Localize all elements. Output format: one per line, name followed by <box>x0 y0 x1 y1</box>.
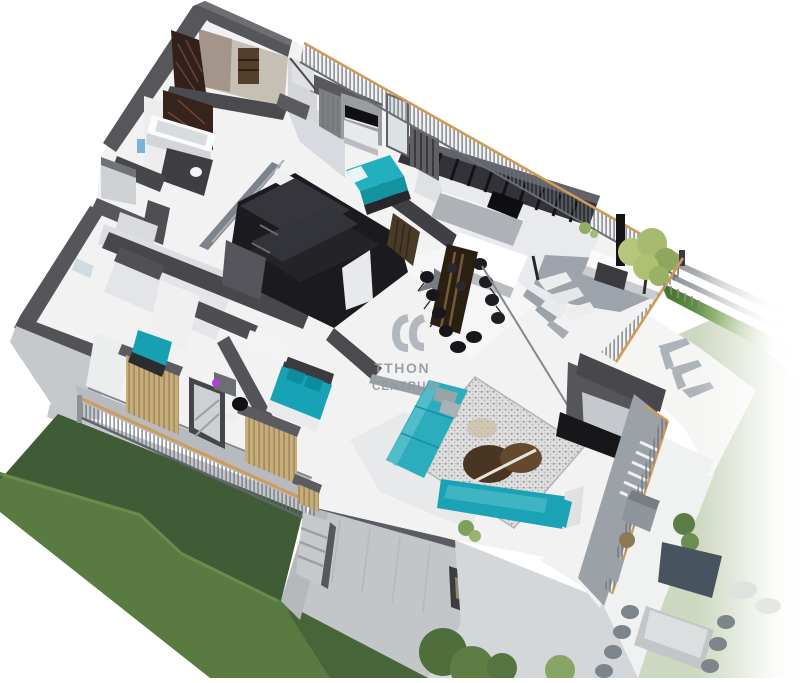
svg-text:TTHON: TTHON <box>374 360 430 376</box>
svg-text:CENTRUM: CENTRUM <box>372 381 437 393</box>
